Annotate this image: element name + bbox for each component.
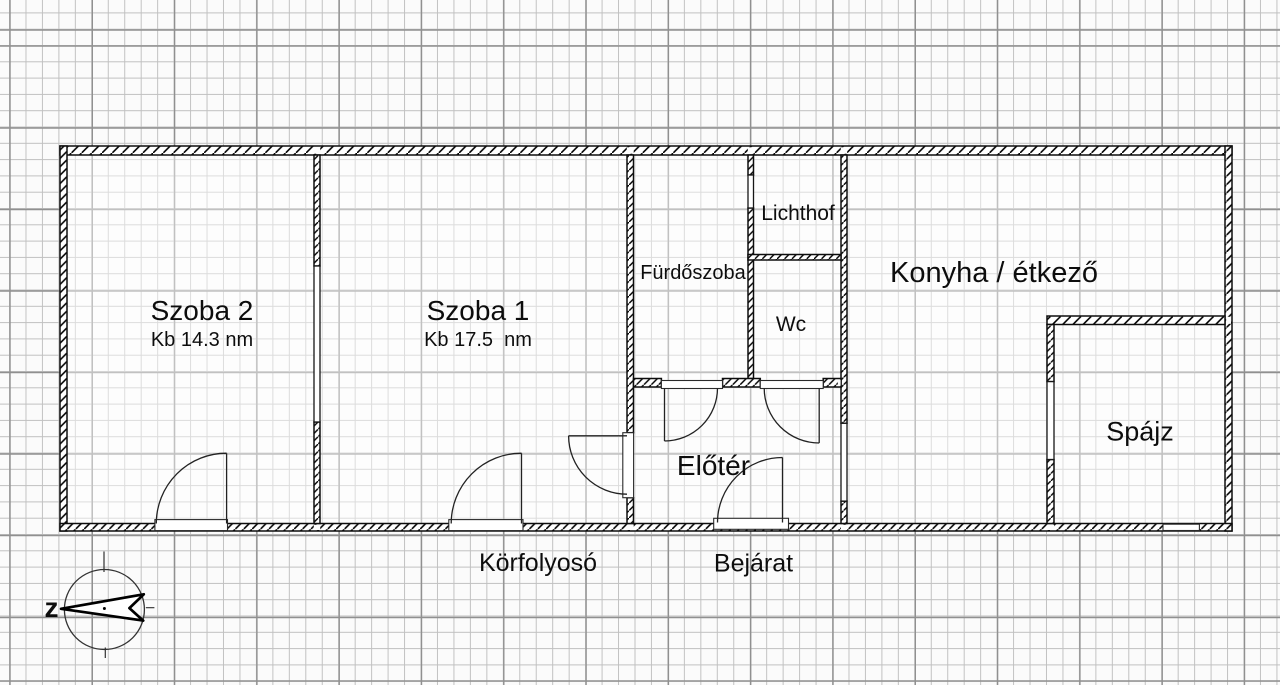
svg-text:z: z (45, 592, 59, 623)
svg-text:Kb 17.5 nm: Kb 17.5 nm (424, 329, 532, 351)
svg-text:Körfolyosó: Körfolyosó (479, 549, 597, 577)
svg-text:Kb 14.3 nm: Kb 14.3 nm (151, 329, 253, 351)
svg-text:Szoba 2: Szoba 2 (151, 295, 254, 326)
svg-text:Előtér: Előtér (677, 450, 750, 481)
svg-text:Spájz: Spájz (1106, 417, 1174, 447)
svg-text:Szoba 1: Szoba 1 (427, 295, 530, 326)
svg-text:Fürdőszoba: Fürdőszoba (640, 262, 746, 284)
svg-text:Lichthof: Lichthof (761, 202, 835, 225)
svg-text:Wc: Wc (776, 313, 806, 336)
svg-text:Bejárat: Bejárat (714, 550, 793, 578)
svg-text:Konyha / étkező: Konyha / étkező (890, 257, 1098, 289)
